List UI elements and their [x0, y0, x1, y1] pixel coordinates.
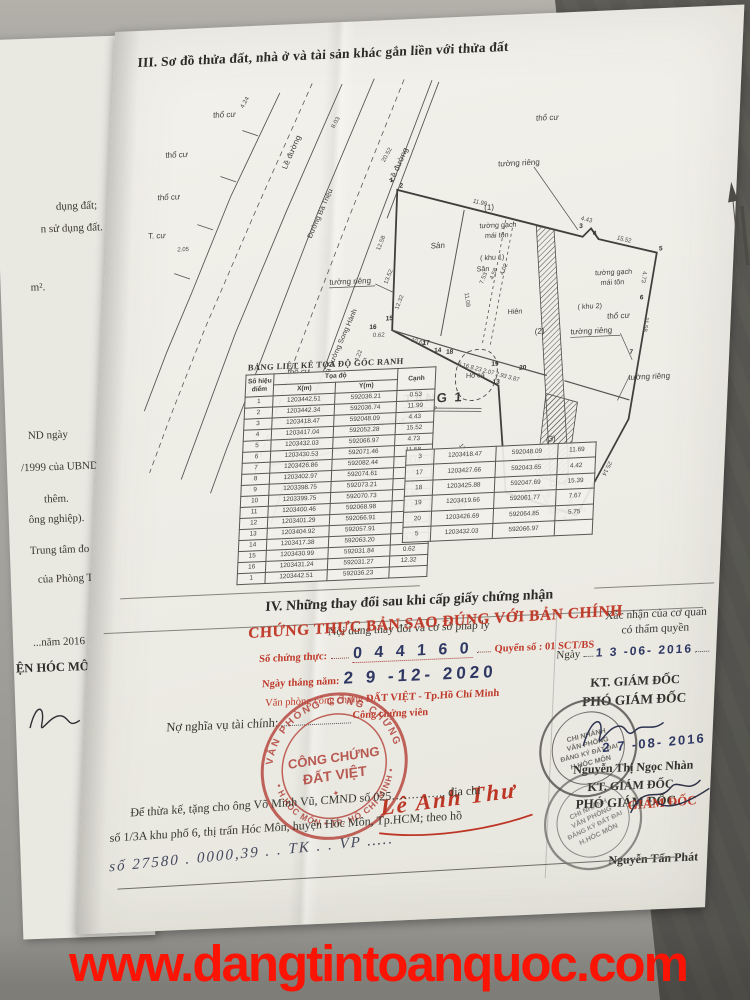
- under-page-fragment: thêm.: [44, 493, 69, 506]
- dim-label: 0.62: [373, 332, 386, 339]
- dim-label: 8.03: [331, 116, 342, 130]
- diagram-label: tường riêng: [329, 276, 371, 287]
- diagram-label: mái tôn: [485, 230, 509, 240]
- under-page-fragment: dụng đất;: [56, 199, 98, 212]
- point-label: 13: [492, 379, 500, 386]
- north-arrow-icon: [726, 180, 750, 287]
- certificate-page: III. Sơ đồ thửa đất, nhà ở và tài sản kh…: [76, 5, 745, 935]
- diagram-label: tường gạch: [479, 220, 516, 231]
- so-chung-thuc-label: Số chứng thực:: [259, 651, 327, 665]
- document-photo: dụng đất; n sử dụng đất. m². ND ngày /19…: [0, 0, 750, 1000]
- divider: [594, 582, 714, 588]
- point-label: 17: [422, 340, 430, 347]
- under-page-fragment: ...năm 2016: [33, 635, 85, 649]
- point-label: 14: [434, 347, 442, 354]
- point-label: 7: [629, 349, 633, 356]
- dim-label: 4.73: [639, 271, 647, 284]
- diagram-label: thổ cư: [213, 110, 237, 120]
- dim-label: 4.58: [489, 267, 499, 281]
- under-page-fragment: ND ngày: [28, 429, 68, 442]
- transfer-note: Để thừa kế, tặng cho ông Võ Minh Vũ, CMN…: [109, 783, 481, 870]
- point-label: 5: [659, 245, 663, 252]
- dim-label: 4.24: [240, 96, 251, 110]
- point-label: 4: [593, 230, 597, 237]
- diagram-label: ( khu 1): [480, 252, 505, 262]
- under-page-fragment: n sử dụng đất.: [40, 221, 103, 235]
- point-label: 18: [446, 349, 454, 356]
- diagram-label: tường riêng: [570, 326, 612, 337]
- diagram-label: (2): [534, 327, 544, 336]
- watermark-url: www.dangtintoanquoc.com: [6, 934, 750, 993]
- dotted-leader: [476, 638, 491, 652]
- col-header-point: Số hiệu điểm: [245, 374, 274, 398]
- coords-table-2: 31203418.47592048.0911.69 171203427.6659…: [402, 441, 597, 543]
- dim-label: 4.02: [500, 262, 510, 276]
- diagram-label: mái tôn: [600, 277, 624, 287]
- dotted-leader: [331, 644, 350, 659]
- date1-label: Ngày: [556, 648, 580, 661]
- point-label: 6: [640, 294, 644, 301]
- street-label: Đường Bà Triệu: [305, 188, 335, 240]
- dotted-leader: [583, 647, 593, 657]
- diagram-label: Hiên: [507, 306, 522, 316]
- dim-label: 12.32: [394, 294, 406, 311]
- diagram-label: Lề đường: [280, 134, 303, 170]
- date1-value: 1 3 -06- 2016: [595, 641, 693, 659]
- diagram-label: thổ cư: [607, 311, 631, 321]
- dim-label: 11.09: [463, 292, 471, 308]
- diagram-label: thổ cư: [157, 192, 181, 202]
- dim-label: 20.52: [381, 146, 394, 163]
- diagram-label: ( khu 2): [577, 301, 602, 311]
- dim-label: 11.58: [641, 317, 649, 333]
- under-page-fragment: /1999 của UBND: [21, 460, 98, 475]
- point-label: 3: [579, 223, 583, 230]
- point-label: 20: [519, 364, 527, 371]
- section3-title: III. Sơ đồ thửa đất, nhà ở và tài sản kh…: [137, 39, 509, 71]
- point-label: 1: [390, 177, 394, 184]
- under-page-fragment: ông nghiệp).: [29, 512, 85, 526]
- diagram-label: thổ cư: [536, 113, 560, 123]
- under-page-fragment: m².: [30, 281, 45, 294]
- dim-label: 11.99: [472, 199, 488, 208]
- dim-label: 2.05: [177, 247, 190, 254]
- dotted-leader: [696, 642, 710, 652]
- point-label: 16: [369, 324, 377, 331]
- col-header-edge: Cạnh: [397, 367, 436, 391]
- diagram-label: T. cư: [148, 231, 167, 241]
- diagram-label: tường riêng: [628, 371, 670, 382]
- point-label: 2: [399, 183, 403, 190]
- diagram-label: thổ cư: [165, 150, 189, 160]
- point-label: 15: [386, 315, 394, 322]
- so-chung-thuc-value: 0 4 4 1 6 0: [353, 640, 473, 663]
- point-label: 19: [491, 361, 499, 368]
- diagram-label: tường riêng: [498, 158, 540, 169]
- dim-label: 12.58: [376, 234, 388, 251]
- diagram-label: Sân: [431, 241, 446, 251]
- diagram-label: tường gạch: [595, 267, 632, 278]
